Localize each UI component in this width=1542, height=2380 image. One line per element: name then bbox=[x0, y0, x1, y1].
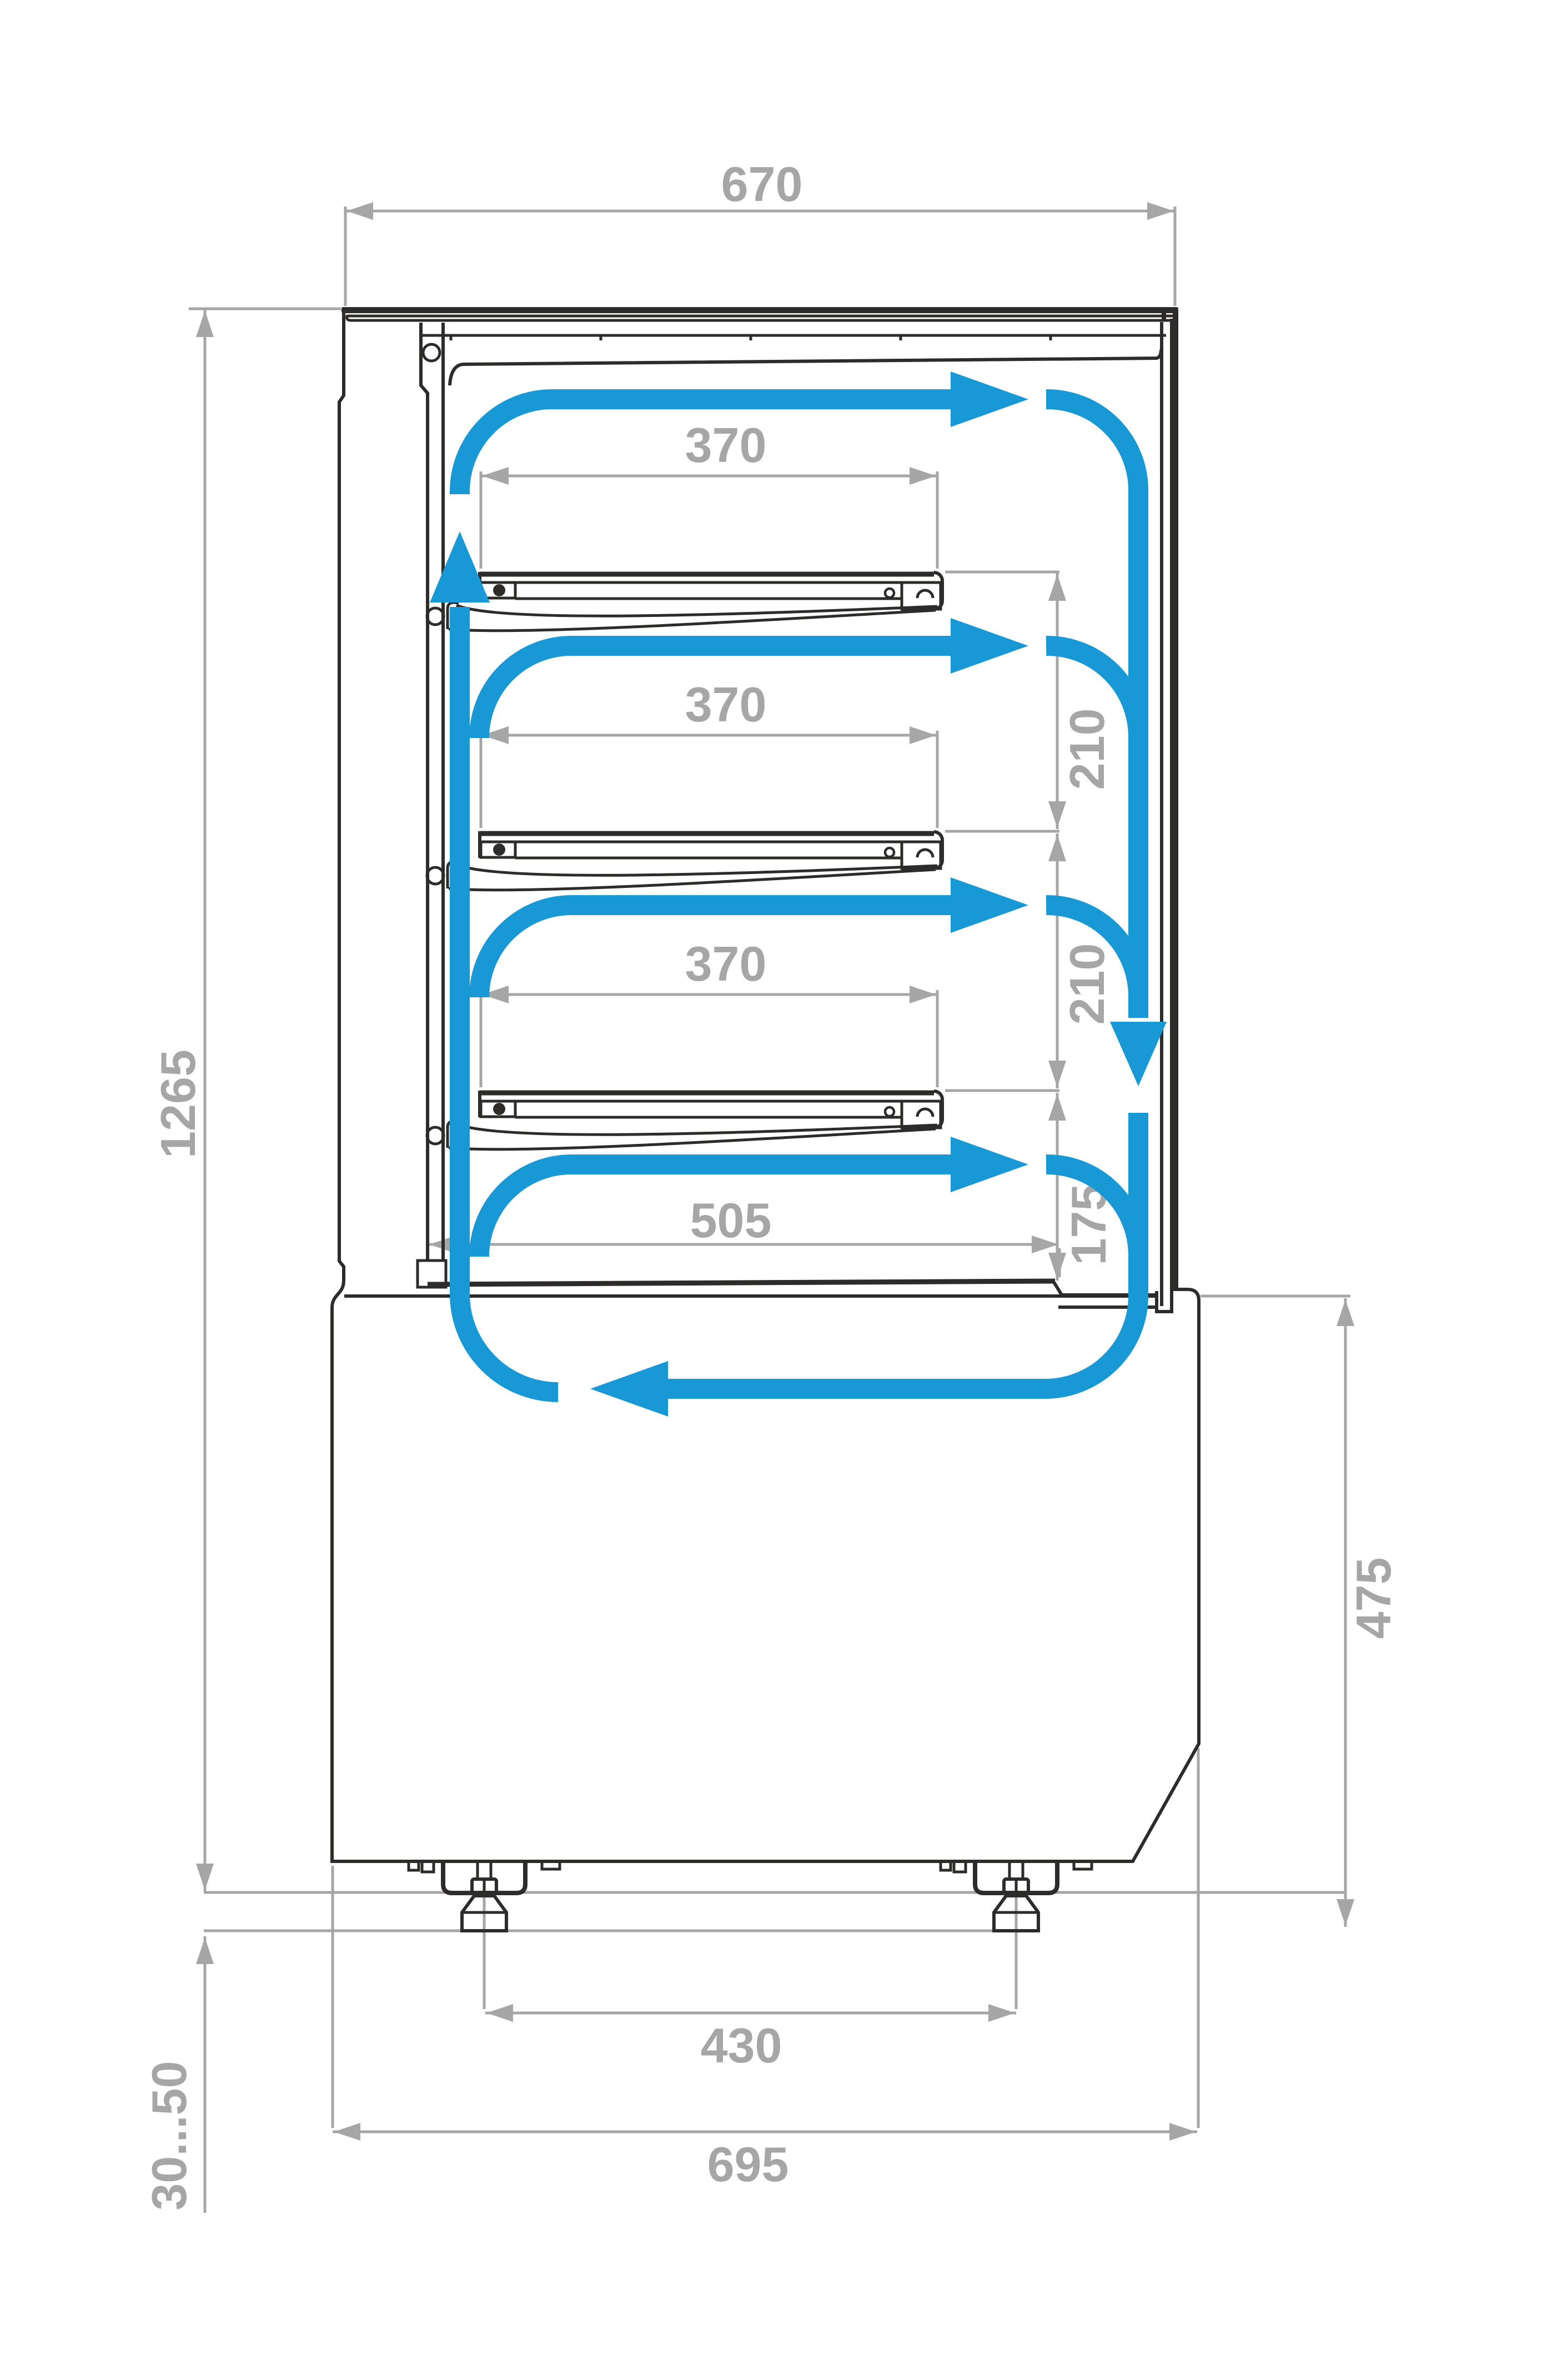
svg-text:695: 695 bbox=[707, 2137, 789, 2192]
svg-text:505: 505 bbox=[690, 1193, 772, 1248]
svg-text:430: 430 bbox=[701, 2018, 782, 2073]
svg-text:670: 670 bbox=[721, 157, 803, 212]
svg-text:475: 475 bbox=[1346, 1558, 1401, 1639]
svg-text:370: 370 bbox=[685, 677, 767, 732]
svg-text:370: 370 bbox=[685, 936, 767, 991]
svg-text:210: 210 bbox=[1059, 943, 1114, 1025]
svg-text:1265: 1265 bbox=[150, 1050, 205, 1158]
svg-text:30...50: 30...50 bbox=[142, 2061, 197, 2210]
svg-text:370: 370 bbox=[685, 418, 767, 473]
svg-text:210: 210 bbox=[1059, 709, 1114, 790]
